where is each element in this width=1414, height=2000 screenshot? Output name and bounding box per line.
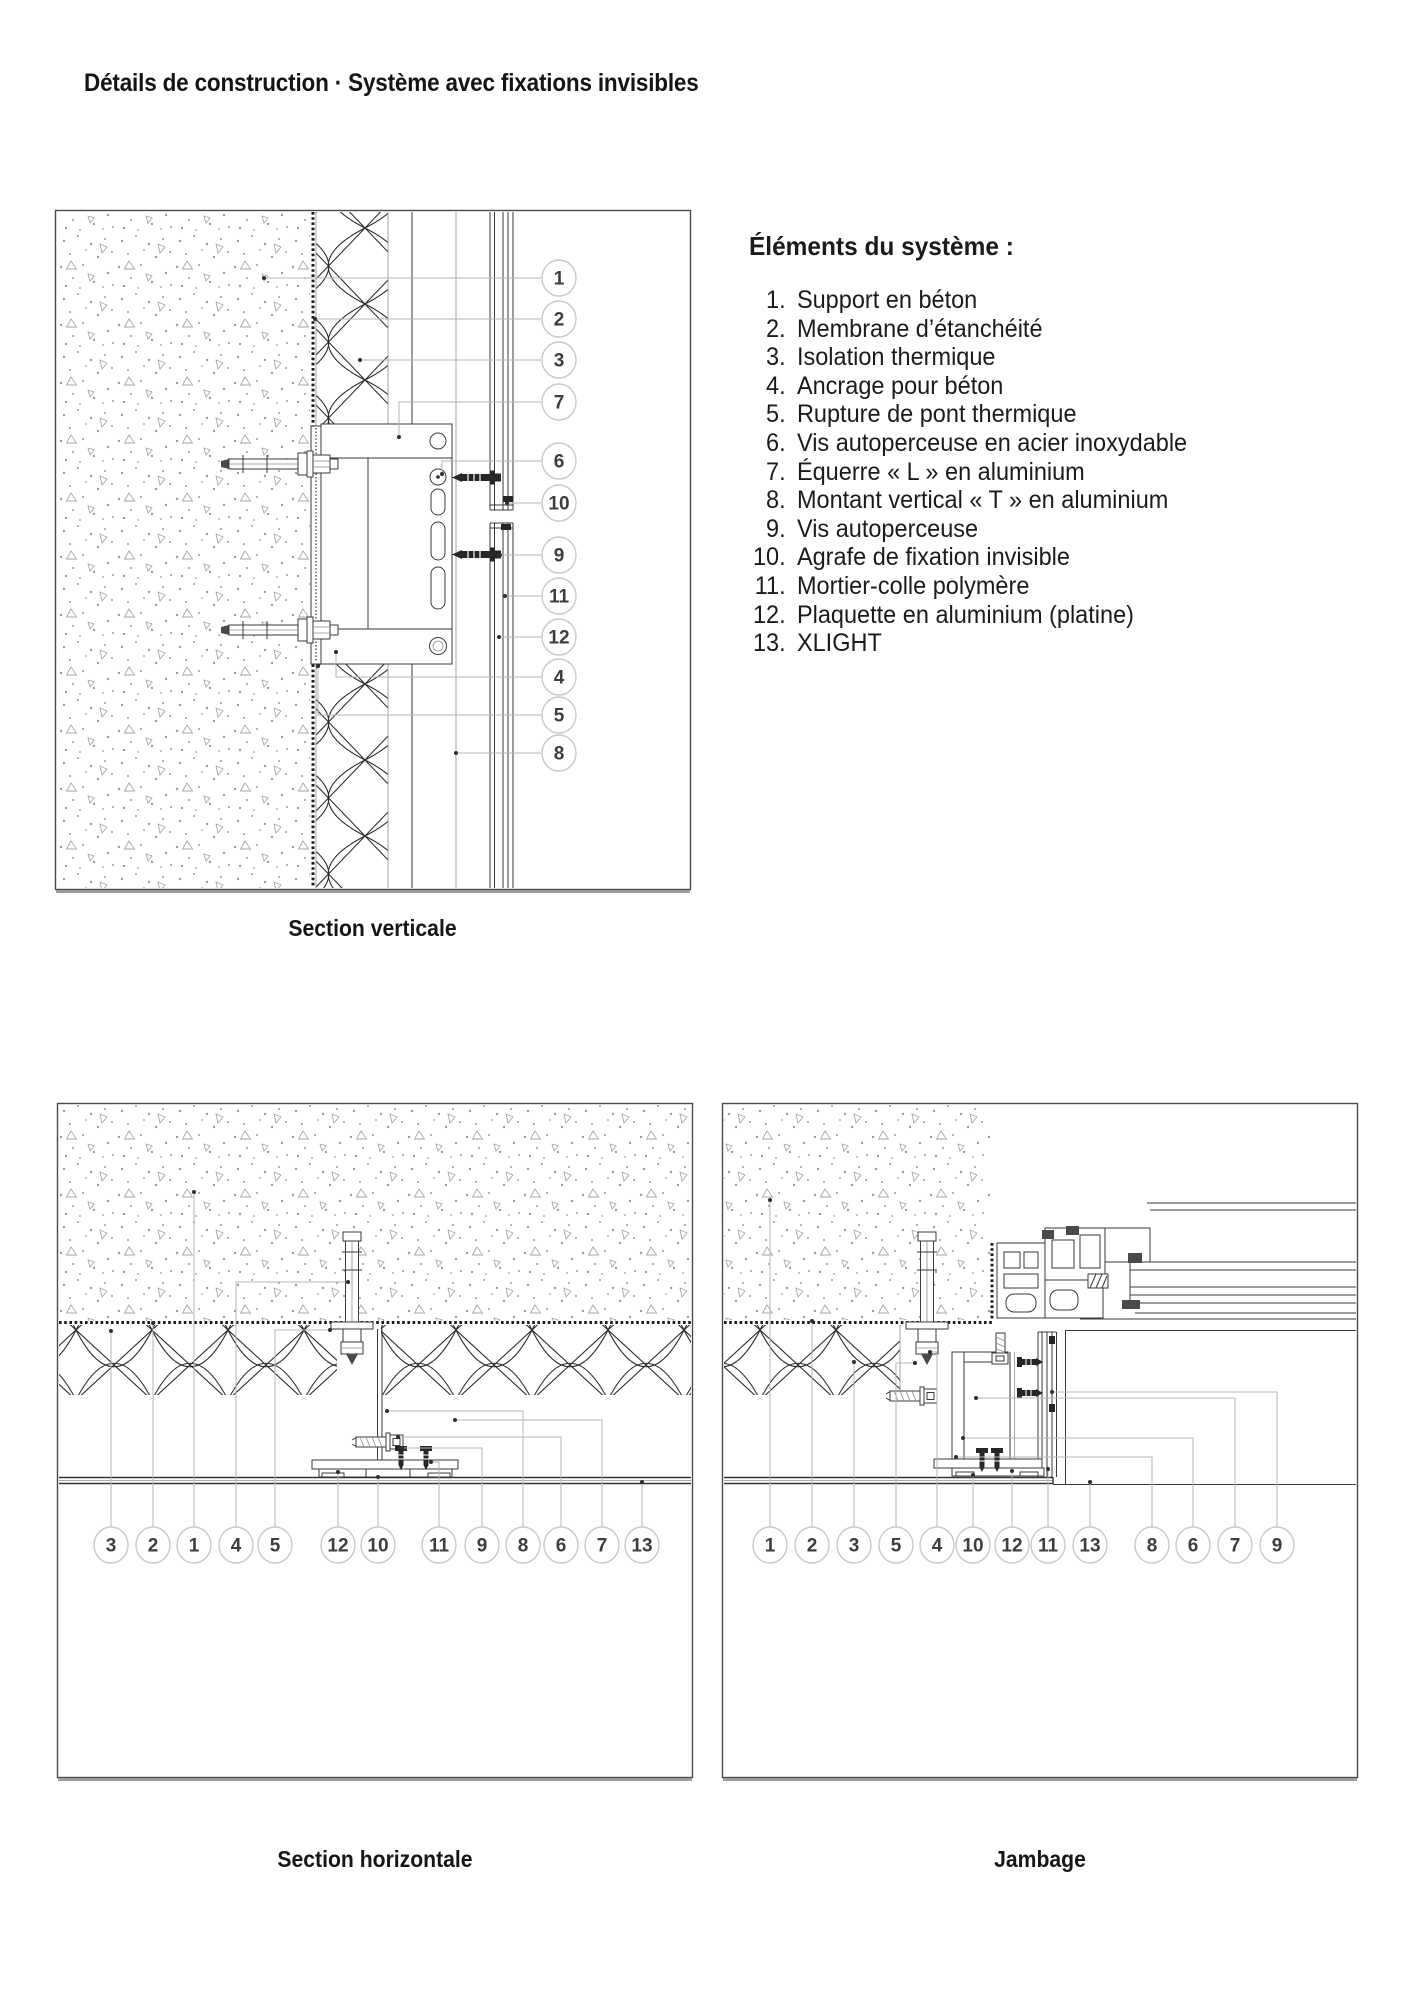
callout-number: 1 — [765, 1536, 776, 1557]
callout-leader-dot — [1046, 1467, 1050, 1471]
system-elements-legend: Éléments du système : 1.Support en béton… — [749, 231, 1187, 658]
callout-number: 4 — [231, 1536, 242, 1557]
callout-leader-dot — [768, 1198, 772, 1202]
callout-number: 12 — [327, 1536, 348, 1557]
legend-item-label: XLIGHT — [797, 629, 882, 658]
callout-leader-dot — [358, 358, 362, 362]
legend-item-number: 5. — [749, 400, 786, 429]
callout-number: 5 — [554, 706, 565, 727]
callout-leader-dot — [503, 594, 507, 598]
callout-number: 1 — [189, 1536, 200, 1557]
callout-leader-dot — [396, 1435, 400, 1439]
legend-item: 1.Support en béton — [749, 286, 1187, 315]
callout-leader-dot — [852, 1360, 856, 1364]
legend-item: 7.Équerre « L » en aluminium — [749, 458, 1187, 487]
legend-item: 13.XLIGHT — [749, 629, 1187, 658]
callout-leader-dot — [192, 1190, 196, 1194]
legend-item: 6.Vis autoperceuse en acier inoxydable — [749, 429, 1187, 458]
caption-section-horizontale: Section horizontale — [82, 1846, 667, 1873]
callout-number: 12 — [548, 628, 569, 649]
legend-item-label: Membrane d’étanchéité — [797, 315, 1043, 344]
legend-list: 1.Support en béton2.Membrane d’étanchéit… — [749, 286, 1187, 658]
callout-number: 11 — [1038, 1536, 1059, 1557]
legend-item-number: 1. — [749, 286, 786, 315]
callout-leader-dot — [262, 276, 266, 280]
legend-item: 9.Vis autoperceuse — [749, 515, 1187, 544]
callout-number: 3 — [554, 351, 565, 372]
legend-item-number: 7. — [749, 458, 786, 487]
callout-number: 6 — [1188, 1536, 1199, 1557]
callout-leader-dot — [346, 1280, 350, 1284]
callout-leader-dot — [440, 472, 444, 476]
callout-number: 9 — [1272, 1536, 1283, 1557]
legend-item: 11.Mortier-colle polymère — [749, 572, 1187, 601]
callout-number: 6 — [554, 452, 565, 473]
callout-leader-dot — [971, 1473, 975, 1477]
callout-number: 5 — [270, 1536, 281, 1557]
legend-item-label: Vis autoperceuse en acier inoxydable — [797, 429, 1187, 458]
callout-number: 13 — [1079, 1536, 1100, 1557]
legend-item: 3.Isolation thermique — [749, 343, 1187, 372]
callout-leader-dot — [336, 1470, 340, 1474]
vertical-section-drawing — [56, 211, 691, 892]
callout-number: 6 — [556, 1536, 567, 1557]
legend-item: 10.Agrafe de fixation invisible — [749, 543, 1187, 572]
callout-number: 7 — [1230, 1536, 1241, 1557]
callout-number: 10 — [548, 494, 569, 515]
legend-item-label: Support en béton — [797, 286, 977, 315]
legend-item-label: Ancrage pour béton — [797, 372, 1003, 401]
callout-number: 4 — [554, 668, 565, 689]
callout-leader-dot — [385, 1409, 389, 1413]
callout-number: 3 — [106, 1536, 117, 1557]
legend-item-label: Isolation thermique — [797, 343, 996, 372]
callout-number: 13 — [631, 1536, 652, 1557]
legend-item: 4.Ancrage pour béton — [749, 372, 1187, 401]
callout-leader-dot — [497, 635, 501, 639]
legend-item: 8.Montant vertical « T » en aluminium — [749, 486, 1187, 515]
legend-item-number: 12. — [749, 601, 786, 630]
callout-leader-dot — [151, 1321, 155, 1325]
legend-item-label: Agrafe de fixation invisible — [797, 543, 1070, 572]
callout-number: 2 — [807, 1536, 818, 1557]
callout-number: 9 — [554, 546, 565, 567]
legend-item-number: 8. — [749, 486, 786, 515]
callout-leader-dot — [810, 1319, 814, 1323]
callout-number: 11 — [549, 587, 570, 608]
callout-leader-dot — [640, 1480, 644, 1484]
callout-number: 8 — [518, 1536, 529, 1557]
legend-item-label: Vis autoperceuse — [797, 515, 978, 544]
legend-item-label: Plaquette en aluminium (platine) — [797, 601, 1134, 630]
callout-leader-dot — [109, 1329, 113, 1333]
callout-leader-dot — [453, 1418, 457, 1422]
callout-number: 2 — [554, 310, 565, 331]
callout-leader-dot — [974, 1396, 978, 1400]
jamb-section-drawing — [723, 1104, 1358, 1780]
page-title: Détails de construction · Système avec f… — [84, 69, 699, 98]
callout-number: 10 — [367, 1536, 388, 1557]
legend-item: 12.Plaquette en aluminium (platine) — [749, 601, 1187, 630]
legend-item-number: 6. — [749, 429, 786, 458]
construction-drawings: 123761091112458 32145121011986713 123541… — [0, 0, 1414, 2000]
legend-item: 5.Rupture de pont thermique — [749, 400, 1187, 429]
legend-item-label: Montant vertical « T » en aluminium — [797, 486, 1168, 515]
legend-heading: Éléments du système : — [749, 231, 1187, 262]
callout-number: 2 — [148, 1536, 159, 1557]
legend-item-number: 3. — [749, 343, 786, 372]
callout-leader-dot — [376, 1475, 380, 1479]
callout-leader-dot — [928, 1350, 932, 1354]
legend-item-number: 10. — [749, 543, 786, 572]
callout-number: 3 — [849, 1536, 860, 1557]
callout-number: 4 — [932, 1536, 943, 1557]
caption-section-verticale: Section verticale — [80, 915, 664, 942]
callout-leader-dot — [454, 751, 458, 755]
callout-number: 8 — [554, 744, 565, 765]
callout-leader-dot — [505, 501, 509, 505]
page: 123761091112458 32145121011986713 123541… — [0, 0, 1414, 2000]
callout-leader-dot — [1050, 1390, 1054, 1394]
callout-number: 7 — [597, 1536, 608, 1557]
callout-leader-dot — [334, 650, 338, 654]
callout-leader-dot — [429, 1460, 433, 1464]
callout-leader-dot — [316, 664, 320, 668]
callout-number: 9 — [477, 1536, 488, 1557]
callout-leader-dot — [328, 1328, 332, 1332]
legend-item-label: Équerre « L » en aluminium — [797, 458, 1085, 487]
callout-leader-dot — [1088, 1480, 1092, 1484]
legend-item-number: 9. — [749, 515, 786, 544]
callout-leader-dot — [397, 435, 401, 439]
callout-leader-dot — [1010, 1469, 1014, 1473]
legend-item-label: Mortier-colle polymère — [797, 572, 1029, 601]
callout-number: 1 — [554, 269, 565, 290]
callout-number: 12 — [1001, 1536, 1022, 1557]
callout-number: 10 — [962, 1536, 983, 1557]
caption-jambage: Jambage — [747, 1846, 1332, 1873]
legend-item-number: 2. — [749, 315, 786, 344]
callout-leader-dot — [498, 553, 502, 557]
legend-item-number: 13. — [749, 629, 786, 658]
callout-leader-dot — [400, 1446, 404, 1450]
callout-leader-dot — [954, 1455, 958, 1459]
callout-leader-dot — [961, 1436, 965, 1440]
callout-number: 5 — [891, 1536, 902, 1557]
legend-item: 2.Membrane d’étanchéité — [749, 315, 1187, 344]
callout-number: 8 — [1147, 1536, 1158, 1557]
legend-item-number: 11. — [749, 572, 786, 601]
legend-item-label: Rupture de pont thermique — [797, 400, 1077, 429]
callout-leader-dot — [313, 317, 317, 321]
callout-leader-dot — [913, 1361, 917, 1365]
callout-number: 7 — [554, 393, 565, 414]
callout-number: 11 — [429, 1536, 450, 1557]
legend-item-number: 4. — [749, 372, 786, 401]
